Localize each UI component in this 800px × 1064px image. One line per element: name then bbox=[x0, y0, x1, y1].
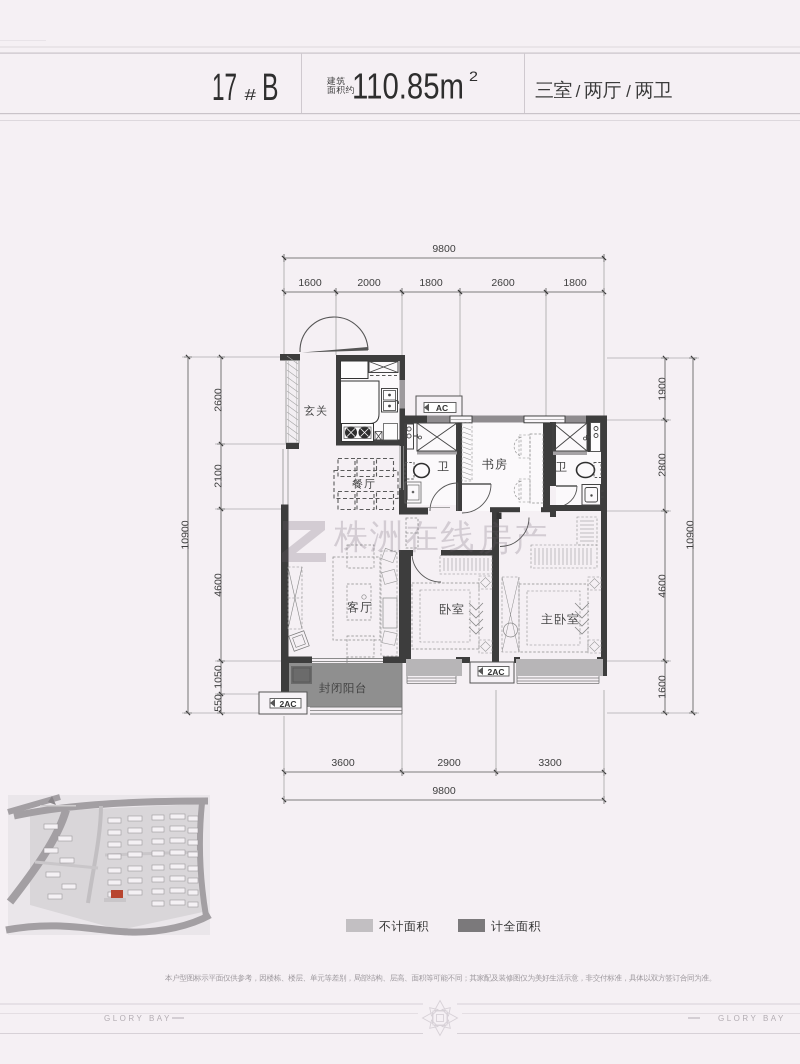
svg-text:3600: 3600 bbox=[331, 757, 355, 769]
svg-text:4600: 4600 bbox=[213, 573, 225, 597]
svg-text:2AC: 2AC bbox=[487, 667, 504, 677]
svg-text:1050: 1050 bbox=[213, 665, 225, 689]
svg-text:110.85m: 110.85m bbox=[352, 66, 464, 107]
svg-text:AC: AC bbox=[436, 403, 448, 413]
svg-text:2: 2 bbox=[469, 69, 478, 84]
svg-text:10900: 10900 bbox=[685, 520, 697, 549]
svg-text:9800: 9800 bbox=[432, 785, 456, 797]
svg-text:B: B bbox=[262, 67, 279, 109]
svg-text:2AC: 2AC bbox=[279, 699, 296, 709]
svg-text:2800: 2800 bbox=[657, 453, 669, 477]
svg-text:2100: 2100 bbox=[213, 464, 225, 488]
svg-text:3300: 3300 bbox=[538, 757, 562, 769]
svg-text:GLORY BAY: GLORY BAY bbox=[104, 1014, 172, 1023]
svg-text:1600: 1600 bbox=[298, 277, 322, 289]
svg-text:2000: 2000 bbox=[357, 277, 381, 289]
svg-text:2900: 2900 bbox=[437, 757, 461, 769]
svg-text:1800: 1800 bbox=[563, 277, 587, 289]
svg-text:550: 550 bbox=[213, 694, 225, 712]
svg-text:9800: 9800 bbox=[432, 243, 456, 255]
svg-text:2600: 2600 bbox=[213, 388, 225, 412]
svg-text:1800: 1800 bbox=[419, 277, 443, 289]
svg-text:GLORY BAY: GLORY BAY bbox=[718, 1014, 786, 1023]
svg-text:1600: 1600 bbox=[657, 675, 669, 699]
svg-text:#: # bbox=[245, 87, 257, 104]
svg-text:/: / bbox=[626, 82, 631, 101]
svg-text:2600: 2600 bbox=[491, 277, 515, 289]
svg-text:/: / bbox=[576, 82, 581, 101]
svg-text:17: 17 bbox=[212, 67, 237, 109]
svg-text:4600: 4600 bbox=[657, 574, 669, 598]
svg-text:10900: 10900 bbox=[180, 520, 192, 549]
svg-text:1900: 1900 bbox=[657, 377, 669, 401]
